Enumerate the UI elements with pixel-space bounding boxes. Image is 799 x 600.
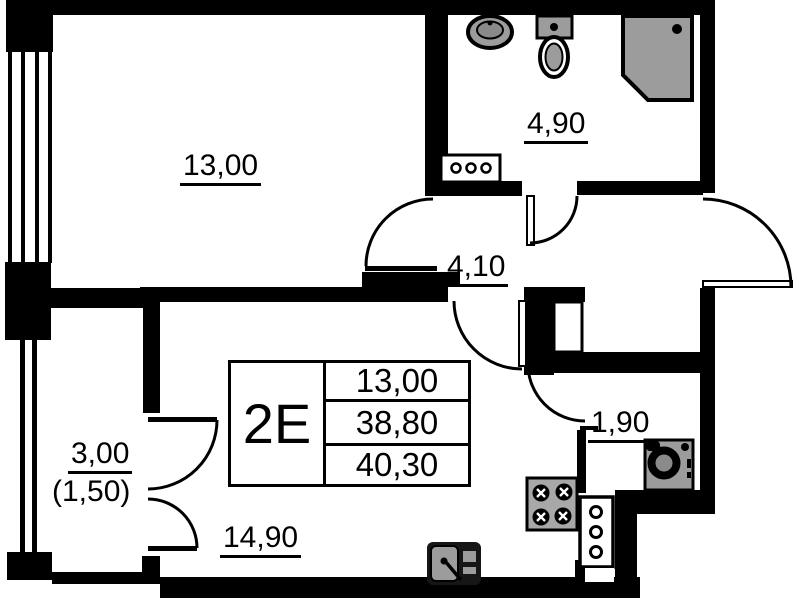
washer-drum [652,451,677,476]
door-swing-entrance [703,199,791,287]
shower-drain [672,24,682,34]
toilet-fixture [537,16,572,77]
shaft-hole [591,547,602,558]
wall-segment [140,287,448,302]
unit-area-row: 40,30 [326,446,468,484]
toilet-bowl-inner [546,44,563,71]
door-swing-balcony-bottom [148,499,197,548]
hallway-area-value: 4,10 [444,251,508,287]
room-area-value: 13,00 [180,150,261,186]
wall-segment [577,181,703,195]
storage-area-label: 1,90 [588,407,652,443]
wall-segment [554,352,585,373]
floor-plan-drawing [0,0,799,600]
wall-segment [51,288,143,308]
door-swing-balcony-top [148,420,217,489]
wall-segment [160,577,640,598]
shaft-hole [591,527,602,538]
unit-area-row: 13,00 [326,363,468,402]
wall-segment [524,287,554,375]
unit-total-area: 40,30 [356,446,439,484]
shaft-hole [467,164,476,173]
unit-area-no-balcony: 38,80 [356,404,439,442]
wall-segment [6,0,715,15]
door-leaf-living [519,301,526,366]
wall-segment [6,0,53,52]
window-frame-line [35,51,39,263]
kitchen-living-area-value: 14,90 [220,522,301,558]
door-leaf-room [365,266,437,271]
unit-areas-column: 13,00 38,80 40,30 [326,363,468,484]
door-swing-room [366,199,433,266]
wall-segment [700,0,715,193]
washbasin-tap [488,21,493,26]
unit-living-area: 13,00 [356,362,439,400]
wall-segment [585,352,700,373]
wall-segment [7,552,52,580]
washer-panel-mark [687,459,691,468]
unit-type-cell: 2E [231,363,326,484]
wall-segment [5,262,51,340]
toilet-button [550,23,558,31]
washer-knob [681,443,689,451]
washer-panel-mark [687,472,691,478]
unit-type-label: 2E [243,391,312,456]
unit-info-table: 2E 13,00 38,80 40,30 [228,360,471,487]
wall-segment [142,556,160,576]
window-frame-line [48,51,52,263]
balcony-area-label: 3,00 [68,438,132,474]
balcony-reduced-area-label: (1,50) [52,476,130,508]
door-leaf-balcony-bottom [148,546,197,551]
unit-area-row: 38,80 [326,402,468,446]
balcony-reduced-area-value: (1,50) [52,475,130,508]
window-room [8,51,52,263]
storage-area-value: 1,90 [588,407,652,443]
sink-drainboard [463,567,476,574]
kitchen-sink-fixture [427,542,481,585]
glazing-line [32,340,37,553]
shower-tray-fixture [623,16,692,100]
kitchen-living-area-label: 14,90 [220,522,301,558]
door-leaf-balcony-top [148,417,217,422]
stove-fixture [527,478,577,530]
wall-segment [700,288,715,514]
glazing-line [20,340,25,553]
door-swing-bathroom [530,196,577,243]
shaft-hole [591,507,602,518]
ventilation-shaft-bathroom [441,155,500,182]
balcony-area-value: 3,00 [68,438,132,474]
floor-plan: 13,00 4,90 4,10 1,90 3,00 (1,50) 14,90 2… [0,0,799,600]
hallway-area-label: 4,10 [444,251,508,287]
bathroom-area-value: 4,90 [524,108,588,144]
window-frame-line [8,51,12,263]
door-leaf-entrance [703,281,792,287]
duct-box [554,302,582,352]
riser-shaft-kitchen [580,497,613,567]
bathroom-area-label: 4,90 [524,108,588,144]
door-leaf-bathroom [527,196,534,245]
shaft-hole [482,164,491,173]
door-swing-living [454,301,522,369]
sink-drainboard [463,551,476,562]
balcony-glazing [20,340,37,553]
shaft-hole [452,164,461,173]
room-area-label: 13,00 [180,150,261,186]
window-frame-line [21,51,25,263]
wall-segment [143,288,160,413]
washbasin-fixture [468,16,512,48]
wall-niche [585,568,614,582]
washing-machine-fixture [645,440,693,490]
